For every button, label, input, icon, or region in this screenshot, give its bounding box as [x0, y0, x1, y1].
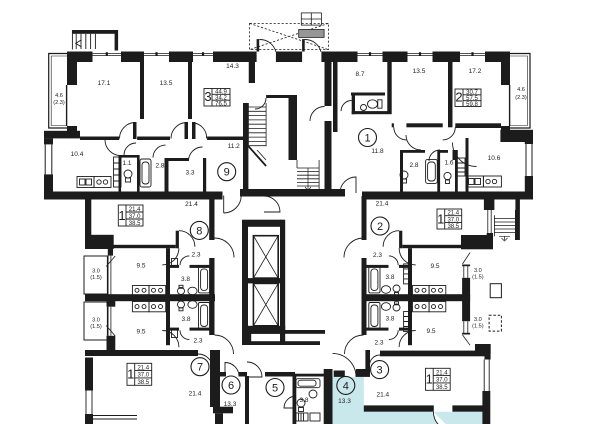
svg-text:3.0: 3.0	[474, 317, 482, 323]
svg-text:21.4: 21.4	[189, 391, 202, 398]
svg-text:37.0: 37.0	[129, 214, 141, 220]
svg-text:4.6: 4.6	[517, 87, 525, 93]
svg-text:(2.3): (2.3)	[515, 95, 527, 101]
svg-text:3.8: 3.8	[181, 276, 190, 283]
svg-text:2.3: 2.3	[373, 252, 382, 259]
svg-text:38.5: 38.5	[436, 385, 448, 391]
svg-text:11.2: 11.2	[228, 143, 241, 150]
svg-text:8.7: 8.7	[355, 71, 364, 78]
svg-text:3.8: 3.8	[385, 316, 394, 323]
svg-text:(1.5): (1.5)	[90, 324, 102, 330]
svg-text:10.4: 10.4	[71, 151, 84, 158]
svg-text:21.4: 21.4	[436, 370, 448, 376]
svg-text:13.5: 13.5	[413, 68, 426, 75]
svg-text:13.3: 13.3	[338, 398, 351, 405]
svg-text:2: 2	[455, 90, 462, 105]
svg-text:3.3: 3.3	[185, 170, 194, 177]
svg-text:1: 1	[118, 208, 125, 223]
svg-text:3.0: 3.0	[474, 268, 482, 274]
svg-text:(1.5): (1.5)	[472, 324, 484, 330]
svg-text:21.4: 21.4	[185, 201, 198, 208]
svg-text:3.8: 3.8	[385, 274, 394, 281]
svg-text:7: 7	[197, 362, 203, 374]
svg-text:3: 3	[377, 365, 383, 377]
svg-text:21.4: 21.4	[376, 392, 389, 399]
svg-text:5: 5	[272, 383, 278, 395]
svg-text:9.5: 9.5	[136, 329, 145, 336]
svg-text:(1.5): (1.5)	[472, 275, 484, 281]
svg-text:2.3: 2.3	[193, 338, 202, 345]
svg-text:1: 1	[127, 366, 134, 381]
svg-text:38.5: 38.5	[129, 221, 141, 227]
svg-text:13.5: 13.5	[160, 80, 173, 87]
svg-text:37.0: 37.0	[137, 373, 149, 379]
svg-text:37.0: 37.0	[447, 217, 459, 223]
svg-text:76.5: 76.5	[215, 101, 227, 107]
svg-text:21.4: 21.4	[447, 211, 459, 217]
svg-text:2.8: 2.8	[409, 162, 418, 169]
svg-text:21.4: 21.4	[137, 365, 149, 371]
svg-text:3.0: 3.0	[92, 269, 100, 275]
svg-text:38.5: 38.5	[137, 380, 149, 386]
svg-text:13.3: 13.3	[224, 401, 237, 408]
svg-text:9: 9	[224, 167, 230, 179]
svg-text:2.8: 2.8	[155, 163, 164, 170]
svg-text:1.6: 1.6	[444, 160, 453, 167]
svg-text:6: 6	[228, 380, 234, 392]
svg-text:9.5: 9.5	[136, 263, 145, 270]
svg-text:21.4: 21.4	[129, 207, 141, 213]
svg-text:1: 1	[437, 212, 444, 227]
svg-text:2: 2	[377, 221, 383, 233]
svg-text:38.5: 38.5	[447, 224, 459, 230]
svg-text:10.6: 10.6	[488, 155, 501, 162]
svg-text:11.8: 11.8	[371, 148, 384, 155]
svg-text:3: 3	[204, 89, 211, 104]
svg-text:(1.5): (1.5)	[90, 275, 102, 281]
svg-text:8: 8	[196, 225, 202, 237]
svg-text:14.3: 14.3	[226, 63, 239, 70]
svg-text:3.0: 3.0	[92, 318, 100, 324]
svg-text:4.6: 4.6	[55, 93, 63, 99]
svg-text:3.8: 3.8	[299, 397, 308, 404]
svg-text:1: 1	[364, 133, 370, 145]
svg-text:21.4: 21.4	[376, 201, 389, 208]
svg-text:2.3: 2.3	[374, 340, 383, 347]
svg-text:37.0: 37.0	[436, 378, 448, 384]
svg-text:9.5: 9.5	[430, 263, 439, 270]
svg-text:1.1: 1.1	[122, 160, 131, 167]
svg-text:2.3: 2.3	[191, 252, 200, 259]
svg-text:9.5: 9.5	[426, 328, 435, 335]
svg-text:3.8: 3.8	[181, 316, 190, 323]
svg-text:1: 1	[426, 371, 433, 386]
svg-text:4: 4	[343, 380, 349, 392]
svg-text:17.2: 17.2	[469, 68, 482, 75]
svg-text:17.1: 17.1	[98, 80, 111, 87]
svg-text:(2.3): (2.3)	[53, 100, 65, 106]
svg-text:59.8: 59.8	[466, 102, 478, 108]
